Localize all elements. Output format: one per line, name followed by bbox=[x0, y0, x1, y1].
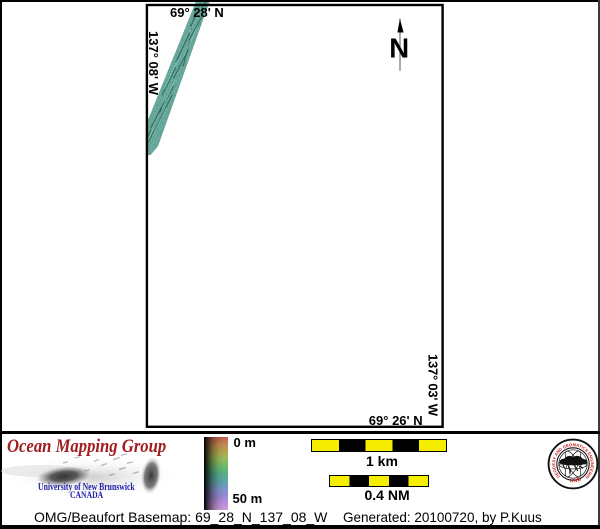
svg-text:N: N bbox=[389, 33, 409, 64]
svg-text:137° 03' W: 137° 03' W bbox=[426, 354, 441, 417]
svg-text:137° 08' W: 137° 08' W bbox=[146, 31, 161, 96]
